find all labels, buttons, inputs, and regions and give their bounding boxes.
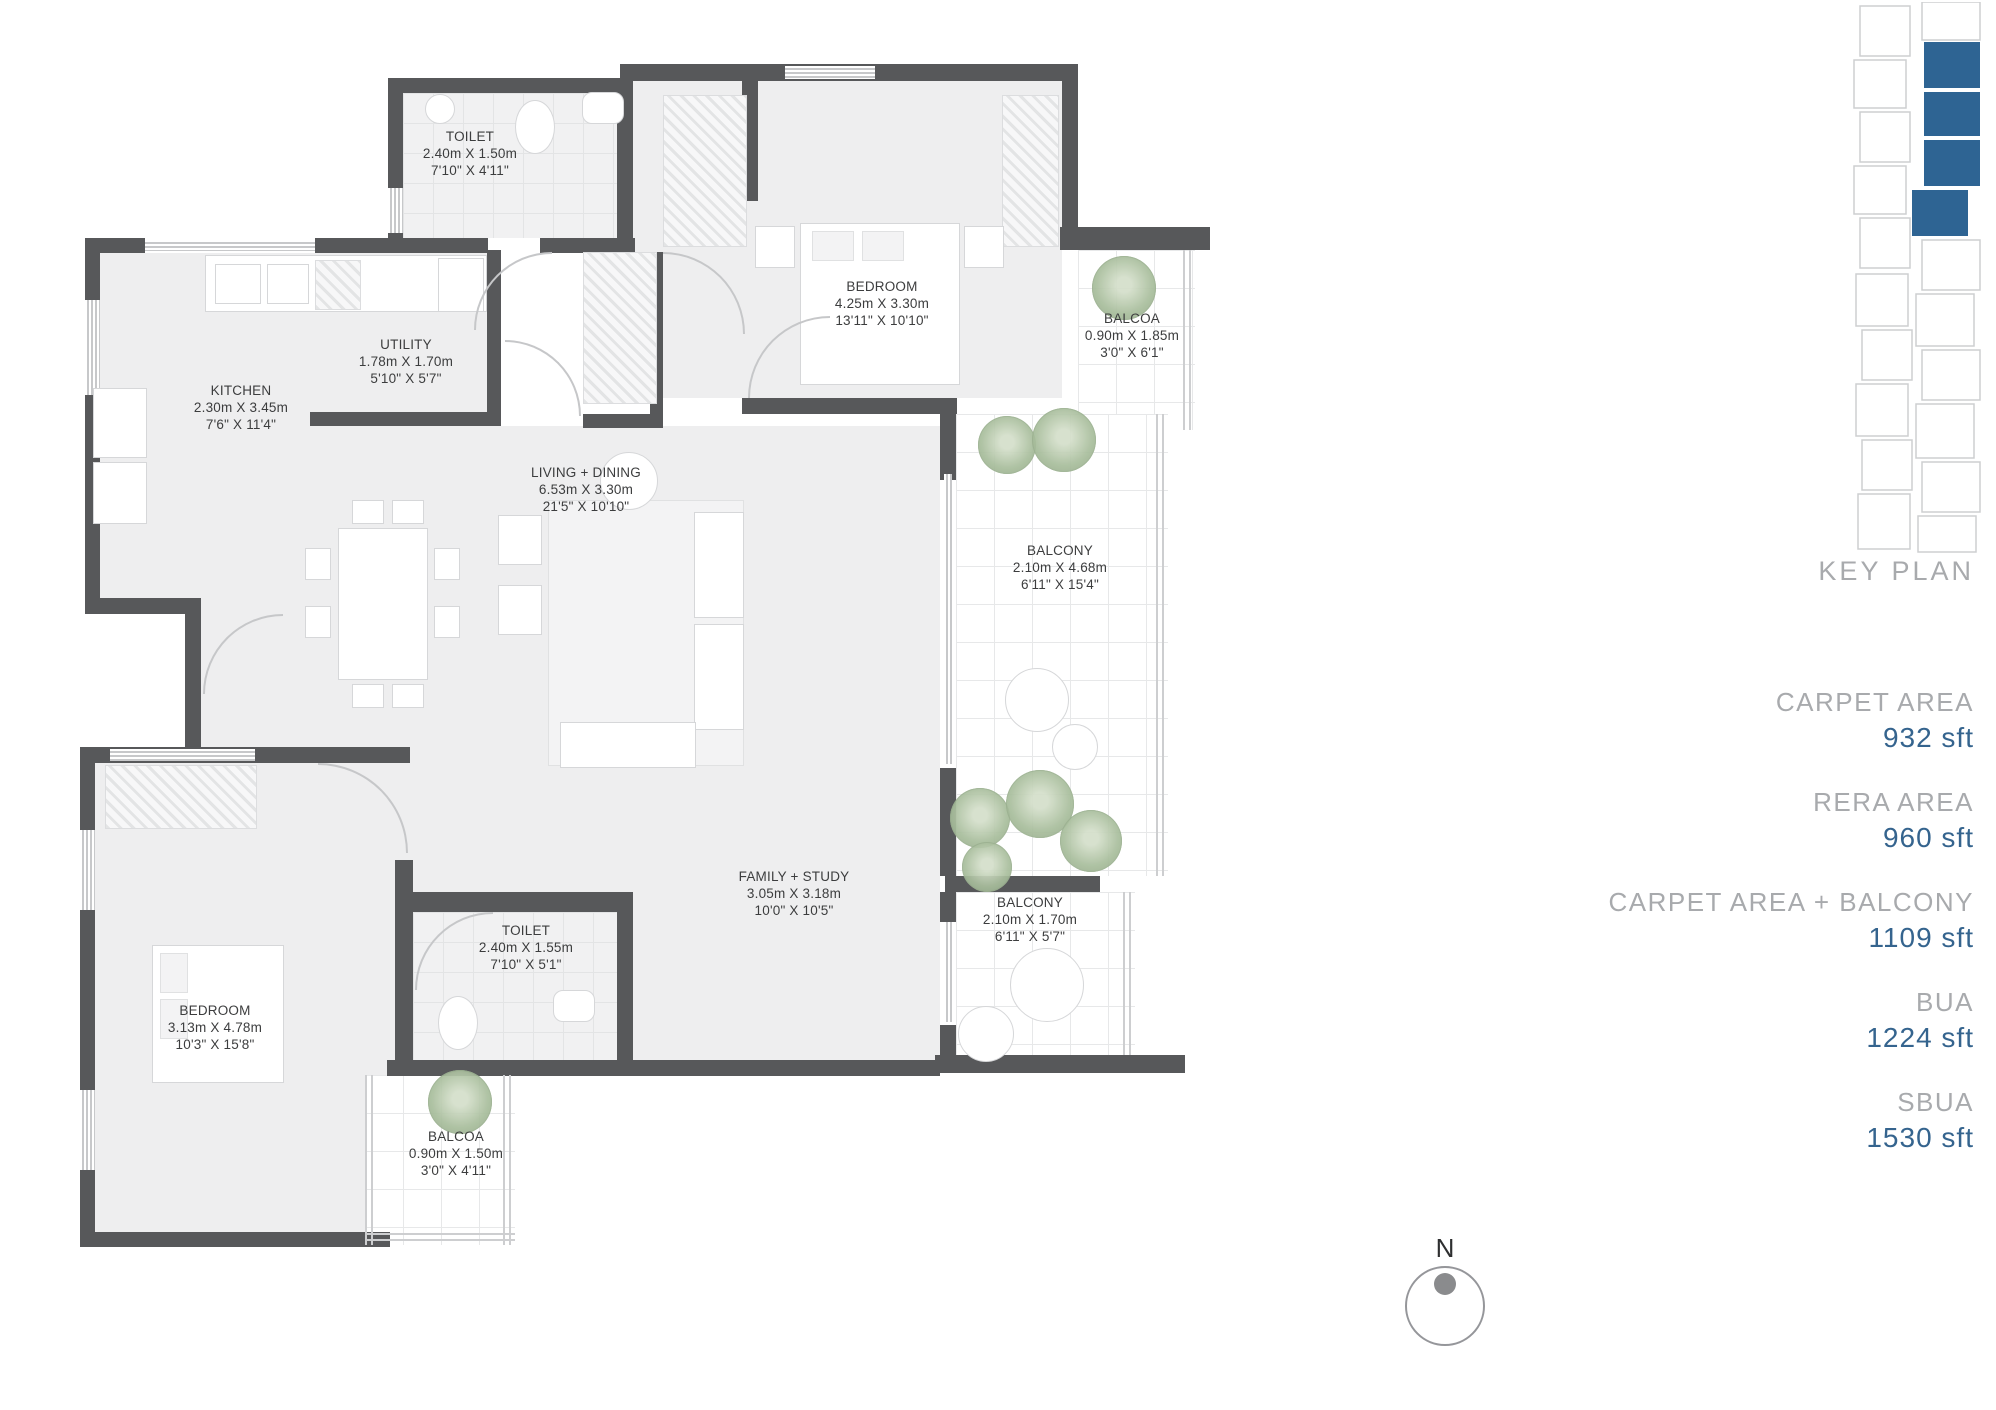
wall	[940, 414, 956, 480]
room-dim-imperial: 13'11" X 10'10"	[835, 312, 929, 329]
wall	[940, 1025, 956, 1057]
nightstand	[964, 226, 1004, 268]
kitchen-cabinet	[93, 462, 147, 524]
dish-rack	[315, 260, 361, 310]
room-name: LIVING + DINING	[531, 464, 641, 481]
room-name: KITCHEN	[194, 382, 288, 399]
plant	[978, 416, 1036, 474]
wall	[395, 860, 413, 1060]
wardrobe-hatch	[1002, 95, 1059, 247]
room-label-family-study: FAMILY + STUDY 3.05m X 3.18m 10'0" X 10'…	[739, 868, 850, 919]
dining-table	[338, 528, 428, 680]
room-dim-imperial: 7'6" X 11'4"	[194, 416, 288, 433]
window	[80, 830, 95, 910]
railing	[503, 1075, 515, 1245]
room-dim-metric: 2.40m X 1.50m	[423, 145, 517, 162]
stat-value: 1224 sft	[1866, 1023, 1974, 1053]
room-dim-imperial: 6'11" X 5'7"	[983, 928, 1077, 945]
room-dim-imperial: 3'0" X 4'11"	[409, 1162, 503, 1179]
hob	[93, 388, 147, 458]
room-dim-metric: 2.30m X 3.45m	[194, 399, 288, 416]
door-arc	[505, 340, 581, 416]
floor-plan: TOILET 2.40m X 1.50m 7'10" X 4'11" BEDRO…	[0, 0, 1996, 1410]
wall	[1060, 227, 1210, 250]
wardrobe-hatch	[583, 252, 657, 404]
chair	[352, 500, 384, 524]
room-dim-metric: 2.10m X 4.68m	[1013, 559, 1107, 576]
room-name: TOILET	[423, 128, 517, 145]
plant	[950, 788, 1010, 848]
stat-label: CARPET AREA	[1776, 688, 1974, 716]
wall	[388, 78, 633, 93]
room-dim-imperial: 5'10" X 5'7"	[359, 370, 453, 387]
patio-chair	[958, 1006, 1014, 1062]
railing	[365, 1233, 515, 1245]
sofa	[694, 512, 744, 618]
room-label-balcony-lower: BALCONY 2.10m X 1.70m 6'11" X 5'7"	[983, 894, 1077, 945]
railing	[1183, 250, 1195, 430]
wall	[80, 747, 95, 1247]
room-dim-imperial: 21'5" X 10'10"	[531, 498, 641, 515]
sofa	[694, 624, 744, 730]
sofa	[560, 722, 696, 768]
room-dim-metric: 3.13m X 4.78m	[168, 1019, 262, 1036]
stat-value: 1109 sft	[1608, 923, 1974, 953]
room-name: BALCOA	[409, 1128, 503, 1145]
compass-north-dot	[1434, 1273, 1456, 1295]
washbasin	[553, 990, 595, 1022]
pillow	[812, 231, 854, 261]
fridge	[438, 258, 484, 312]
stat-carpet-area: CARPET AREA 932 sft	[1776, 688, 1974, 753]
room-dim-imperial: 10'0" X 10'5"	[739, 902, 850, 919]
pillow	[862, 231, 904, 261]
room-label-toilet-bottom: TOILET 2.40m X 1.55m 7'10" X 5'1"	[479, 922, 573, 973]
room-name: BEDROOM	[835, 278, 929, 295]
washbasin	[425, 94, 455, 124]
patio-chair	[1052, 724, 1098, 770]
wall	[388, 78, 403, 188]
key-plan-graphic	[1846, 2, 1996, 554]
room-label-bedroom-bottom: BEDROOM 3.13m X 4.78m 10'3" X 15'8"	[168, 1002, 262, 1053]
room-dim-metric: 4.25m X 3.30m	[835, 295, 929, 312]
kitchen-sink	[267, 264, 309, 304]
room-name: TOILET	[479, 922, 573, 939]
room-dim-imperial: 7'10" X 5'1"	[479, 956, 573, 973]
room-dim-imperial: 6'11" X 15'4"	[1013, 576, 1107, 593]
room-label-balcoa-bottom: BALCOA 0.90m X 1.50m 3'0" X 4'11"	[409, 1128, 503, 1179]
chair	[392, 684, 424, 708]
sliding-door	[944, 922, 952, 1022]
room-dim-imperial: 7'10" X 4'11"	[423, 162, 517, 179]
stat-carpet-balcony: CARPET AREA + BALCONY 1109 sft	[1608, 888, 1974, 953]
chair	[434, 548, 460, 580]
wall	[397, 892, 633, 912]
stat-value: 932 sft	[1776, 723, 1974, 753]
chair	[392, 500, 424, 524]
patio-table	[1005, 668, 1069, 732]
armchair	[498, 585, 542, 635]
room-dim-imperial: 10'3" X 15'8"	[168, 1036, 262, 1053]
railing	[1123, 892, 1135, 1055]
window	[85, 300, 100, 395]
wall	[310, 412, 501, 426]
chair	[352, 684, 384, 708]
compass-ring	[1405, 1266, 1485, 1346]
plant	[1032, 408, 1096, 472]
stat-sbua: SBUA 1530 sft	[1866, 1088, 1974, 1153]
room-dim-metric: 0.90m X 1.50m	[409, 1145, 503, 1162]
wardrobe-hatch	[105, 765, 257, 829]
room-dim-metric: 2.40m X 1.55m	[479, 939, 573, 956]
chair	[305, 606, 331, 638]
wall	[80, 1232, 390, 1247]
wall	[583, 414, 663, 428]
stat-value: 1530 sft	[1866, 1123, 1974, 1153]
wall	[940, 892, 956, 922]
room-name: FAMILY + STUDY	[739, 868, 850, 885]
stat-label: CARPET AREA + BALCONY	[1608, 888, 1974, 916]
railing	[365, 1075, 377, 1245]
wc	[515, 100, 555, 154]
wall	[617, 912, 633, 1076]
window	[785, 66, 875, 79]
room-label-toilet-top: TOILET 2.40m X 1.50m 7'10" X 4'11"	[423, 128, 517, 179]
key-plan-highlight	[1912, 42, 1980, 236]
room-dim-imperial: 3'0" X 6'1"	[1085, 344, 1179, 361]
kitchen-sink	[215, 264, 261, 304]
patio-table	[1010, 948, 1084, 1022]
window	[110, 749, 255, 761]
armchair	[498, 515, 542, 565]
wall	[315, 238, 488, 253]
window	[80, 1090, 95, 1170]
room-label-living-dining: LIVING + DINING 6.53m X 3.30m 21'5" X 10…	[531, 464, 641, 515]
wall	[185, 598, 201, 763]
stat-label: BUA	[1866, 988, 1974, 1016]
room-dim-metric: 1.78m X 1.70m	[359, 353, 453, 370]
room-label-bedroom-top: BEDROOM 4.25m X 3.30m 13'11" X 10'10"	[835, 278, 929, 329]
wc	[438, 996, 478, 1050]
stat-rera-area: RERA AREA 960 sft	[1813, 788, 1974, 853]
north-compass: N	[1402, 1234, 1488, 1346]
room-name: BALCONY	[983, 894, 1077, 911]
stat-value: 960 sft	[1813, 823, 1974, 853]
room-name: UTILITY	[359, 336, 453, 353]
room-dim-metric: 6.53m X 3.30m	[531, 481, 641, 498]
plant	[962, 842, 1012, 892]
room-label-balcoa-top: BALCOA 0.90m X 1.85m 3'0" X 6'1"	[1085, 310, 1179, 361]
key-plan-svg	[1846, 2, 1996, 554]
stat-label: RERA AREA	[1813, 788, 1974, 816]
wall	[85, 598, 200, 614]
room-dim-metric: 0.90m X 1.85m	[1085, 327, 1179, 344]
key-plan-label: KEY PLAN	[1818, 556, 1974, 587]
railing	[1156, 414, 1168, 876]
wall	[540, 238, 635, 253]
room-label-balcony-right: BALCONY 2.10m X 4.68m 6'11" X 15'4"	[1013, 542, 1107, 593]
plant	[428, 1070, 492, 1134]
room-name: BALCONY	[1013, 542, 1107, 559]
room-dim-metric: 3.05m X 3.18m	[739, 885, 850, 902]
pillow	[160, 953, 188, 993]
sliding-door	[944, 474, 952, 764]
chair	[434, 606, 460, 638]
stat-bua: BUA 1224 sft	[1866, 988, 1974, 1053]
room-name: BALCOA	[1085, 310, 1179, 327]
window	[145, 240, 315, 251]
window	[388, 188, 403, 233]
wall	[742, 398, 957, 414]
washbasin	[582, 92, 624, 124]
wall	[1062, 66, 1078, 241]
stat-label: SBUA	[1866, 1088, 1974, 1116]
wall	[100, 238, 145, 253]
plant	[1060, 810, 1122, 872]
chair	[305, 548, 331, 580]
room-name: BEDROOM	[168, 1002, 262, 1019]
room-label-utility: UTILITY 1.78m X 1.70m 5'10" X 5'7"	[359, 336, 453, 387]
room-dim-metric: 2.10m X 1.70m	[983, 911, 1077, 928]
nightstand	[755, 226, 795, 268]
room-label-kitchen: KITCHEN 2.30m X 3.45m 7'6" X 11'4"	[194, 382, 288, 433]
north-label: N	[1402, 1234, 1488, 1262]
foyer-hatch	[663, 95, 747, 247]
